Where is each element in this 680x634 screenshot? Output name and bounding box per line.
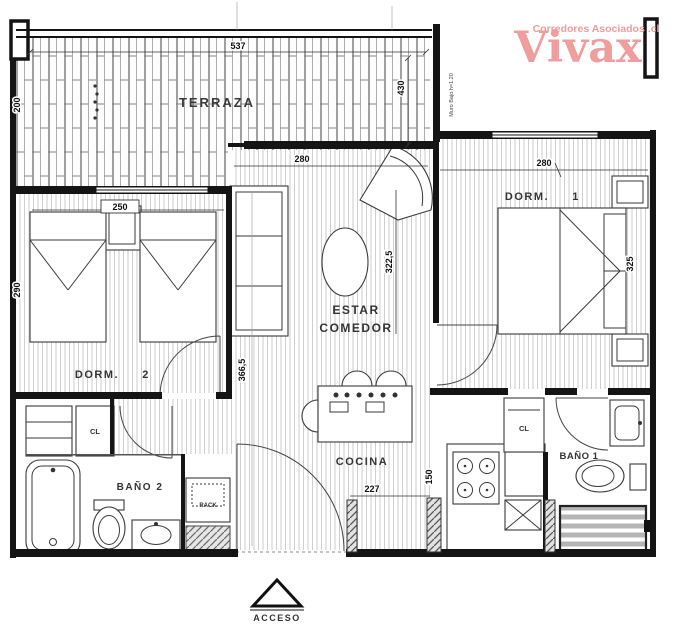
label-bano1: BAÑO 1 (560, 451, 599, 462)
vivax-logo: Corredores Asociados .cl Vivax (513, 23, 659, 73)
label-estar: ESTAR (332, 303, 379, 317)
sofa-icon (230, 186, 288, 336)
dim-cocina-width: 227 (364, 484, 379, 494)
dim-terraza-width: 537 (230, 41, 245, 51)
kitchen-counter-icon (447, 444, 545, 554)
dim-cocina-height: 150 (424, 469, 434, 484)
label-closet-right: CL (519, 424, 529, 433)
label-dorm1: DORM. (505, 191, 549, 203)
dim-dorm2-height: 290 (12, 282, 22, 297)
label-dorm1-num: 1 (572, 191, 580, 203)
label-comedor: COMEDOR (319, 321, 392, 335)
label-dorm2: DORM. (75, 369, 119, 381)
note-muro-bajo: Muro Bajo h=1.20 (449, 73, 455, 117)
dim-dorm1-height: 325 (625, 256, 635, 271)
label-rack: RACK (199, 503, 217, 509)
dim-dorm1-width: 280 (536, 158, 551, 168)
label-closet-left: CL (90, 427, 100, 436)
label-acceso: ACCESO (253, 613, 301, 623)
label-dorm2-num: 2 (142, 369, 150, 381)
dim-dorm2-width: 250 (112, 202, 127, 212)
acceso-arrow-icon (250, 580, 304, 610)
dim-estar-total-height: 366,5 (237, 359, 247, 382)
dim-estar-height: 322,5 (384, 251, 394, 274)
oval-table-icon (322, 228, 368, 296)
floor-plan: TERRAZA DORM. 2 DORM. 1 ESTAR COMEDOR CO… (0, 0, 680, 634)
label-cocina: COCINA (336, 456, 388, 468)
dim-terraza-right: 430 (396, 80, 406, 95)
label-bano2: BAÑO 2 (117, 480, 164, 493)
label-terraza: TERRAZA (179, 95, 255, 110)
hall-floor (114, 399, 232, 454)
logo-brand: Vivax (513, 23, 642, 73)
floor-plan-drawing: TERRAZA DORM. 2 DORM. 1 ESTAR COMEDOR CO… (0, 0, 680, 634)
dim-estar-width: 280 (294, 154, 309, 164)
shower-icon (560, 506, 646, 552)
dim-terraza-height: 200 (12, 97, 22, 112)
